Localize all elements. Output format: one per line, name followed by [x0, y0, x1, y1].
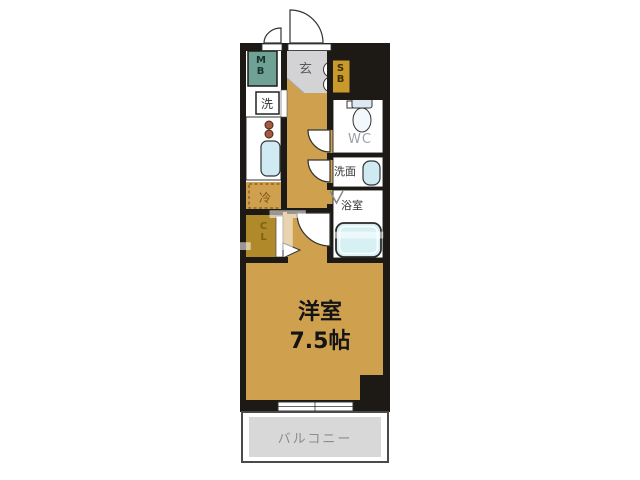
balcony-floor [249, 417, 381, 457]
stove-burner-icon [265, 121, 273, 129]
stove-burner-icon [265, 130, 273, 138]
closet-door-panel [276, 216, 283, 257]
entrance-door-leaf [288, 44, 331, 51]
pillar [360, 375, 387, 412]
toilet-bowl-icon [353, 108, 371, 132]
kitchen-opening [281, 90, 287, 117]
washing-machine-pan [256, 92, 279, 114]
entrance-door-swing-icon [290, 10, 323, 43]
floorplan-drawing [0, 0, 640, 480]
floorplan-image: 玄 MB SB 洗 WC 洗面 冷 浴室 CL 洋室 7.5帖 バルコニー AL… [0, 0, 640, 480]
washbasin-icon [363, 161, 380, 185]
kitchen-sink-icon [261, 141, 280, 176]
meter-box-door-leaf [262, 44, 282, 51]
meter-box [248, 51, 277, 86]
bathtub-icon [336, 223, 381, 257]
meter-box-door-swing-icon [264, 28, 281, 43]
